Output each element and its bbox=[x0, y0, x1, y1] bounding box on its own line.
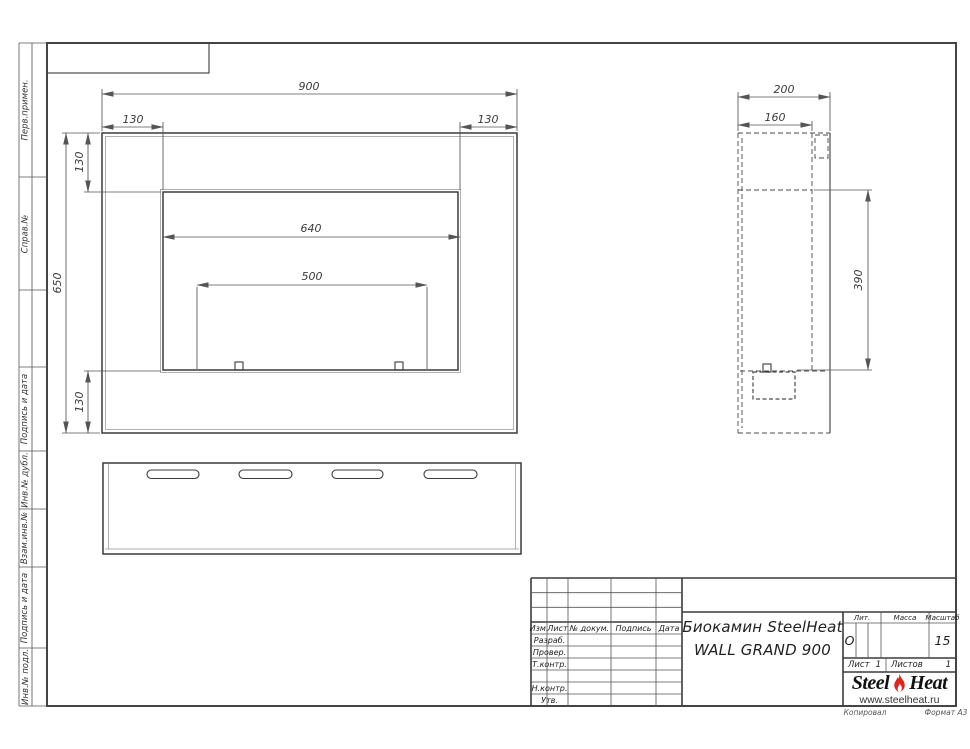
dim-front-flange-right: 130 bbox=[478, 113, 499, 126]
dim-opening-width: 640 bbox=[301, 222, 322, 235]
logo-text-heat: Heat bbox=[909, 673, 947, 693]
col-list: Лист bbox=[547, 622, 568, 634]
bottom-view bbox=[103, 463, 521, 554]
burner-tab-right bbox=[395, 362, 403, 370]
dim-front-width: 900 bbox=[299, 80, 320, 93]
dim-side-opening-height: 390 bbox=[852, 270, 865, 291]
row-razrab: Разраб. bbox=[531, 634, 568, 646]
flame-icon bbox=[891, 673, 908, 693]
sheets-label: Листов bbox=[891, 660, 923, 670]
col-izm: Изм. bbox=[531, 622, 547, 634]
dim-mount-span: 500 bbox=[302, 270, 323, 283]
side-view bbox=[738, 133, 830, 433]
vent-slot-3 bbox=[332, 470, 383, 479]
dim-side-depth: 200 bbox=[774, 83, 795, 96]
dim-front-flange-top: 130 bbox=[73, 152, 86, 173]
lit-value: О bbox=[843, 623, 856, 658]
sheets-cell: Листов 1 bbox=[886, 658, 956, 672]
side-view-dimensions: 200 160 390 bbox=[738, 83, 872, 370]
vent-slot-1 bbox=[147, 470, 199, 479]
scale-value: 15 bbox=[929, 623, 956, 658]
margin-box-podpis-data-1: Подпись и дата bbox=[19, 367, 32, 451]
burner-tab-left bbox=[235, 362, 243, 370]
sheet-number: 1 bbox=[876, 660, 881, 670]
dim-side-inner-depth: 160 bbox=[765, 111, 786, 124]
row-prover: Провер. bbox=[531, 646, 568, 658]
dim-front-flange-bottom: 130 bbox=[73, 392, 86, 413]
sheet-cell: Лист 1 bbox=[843, 658, 886, 672]
col-data: Дата bbox=[656, 622, 682, 634]
scale-label: Масштаб bbox=[929, 612, 956, 623]
logo-text-steel: Steel bbox=[852, 673, 890, 693]
steelheat-logo: Steel Heat www.steelheat.ru bbox=[843, 673, 956, 705]
sheet-label: Лист bbox=[848, 660, 870, 670]
footer-format: Формат А3 bbox=[922, 707, 970, 717]
vent-slot-4 bbox=[424, 470, 477, 479]
top-designation-box bbox=[47, 43, 209, 73]
drawing-sheet: 900 130 130 650 130 130 640 500 200 160 … bbox=[0, 0, 970, 749]
margin-box-inv-dubl: Инв.№ дубл. bbox=[19, 451, 32, 509]
margin-box-inv-podl: Инв.№ подл. bbox=[19, 648, 32, 706]
vent-slot-2 bbox=[239, 470, 292, 479]
margin-box-podpis-data-2: Подпись и дата bbox=[19, 567, 32, 648]
front-view bbox=[102, 133, 517, 433]
margin-box-vzam-inv: Взам.инв.№ bbox=[19, 509, 32, 567]
row-nkontr: Н.контр. bbox=[531, 682, 568, 694]
mount-bracket bbox=[815, 135, 828, 158]
mass-label: Масса bbox=[881, 612, 929, 623]
lit-label: Лит. bbox=[843, 612, 881, 623]
document-title-line1: Биокамин SteelHeat bbox=[684, 616, 841, 637]
document-title-line2: WALL GRAND 900 bbox=[684, 639, 841, 660]
sheets-total: 1 bbox=[946, 660, 951, 670]
col-podpis: Подпись bbox=[611, 622, 656, 634]
dim-front-height: 650 bbox=[51, 273, 64, 294]
burner-box bbox=[753, 372, 795, 399]
row-utv: Утв. bbox=[531, 694, 568, 706]
col-docnum: № докум. bbox=[568, 622, 611, 634]
footer-kopiroval: Копировал bbox=[838, 707, 892, 717]
row-tkontr: Т.контр. bbox=[531, 658, 568, 670]
logo-url: www.steelheat.ru bbox=[860, 694, 940, 706]
margin-box-sprav-no: Справ.№ bbox=[19, 177, 32, 290]
dim-front-flange-left: 130 bbox=[123, 113, 144, 126]
margin-box-perv-primen: Перв.примен. bbox=[19, 43, 32, 177]
